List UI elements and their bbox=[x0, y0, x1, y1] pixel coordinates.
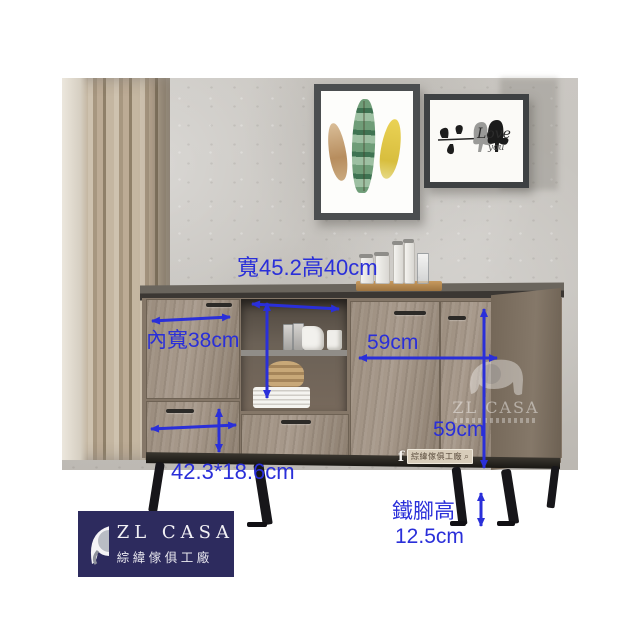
drinking-glass bbox=[283, 324, 293, 351]
glass-bottle bbox=[417, 253, 429, 284]
facebook-search-box: 綜緯傢俱工廠 ⌕ bbox=[407, 449, 473, 464]
cabinet-leg bbox=[546, 466, 559, 509]
watermark-elephant-icon bbox=[461, 352, 531, 398]
facebook-page-name: 綜緯傢俱工廠 bbox=[411, 451, 462, 462]
watermark-brand: ZL CASA bbox=[440, 398, 552, 417]
feather-yellow bbox=[376, 118, 404, 180]
white-pitcher bbox=[302, 326, 324, 351]
tall-bottle bbox=[404, 242, 415, 284]
feather-quill bbox=[363, 101, 365, 191]
dimension-leg-title: 鐵腳高 bbox=[392, 495, 455, 525]
dimension-inner-width-label: 內寬38cm bbox=[146, 324, 239, 354]
dimension-drawer-label: 42.3*18.6cm bbox=[171, 459, 295, 485]
feather-brown bbox=[325, 122, 351, 182]
tall-bottle bbox=[393, 244, 404, 284]
dimension-leg-height-label: 12.5cm bbox=[395, 525, 464, 549]
right-door-1-handle bbox=[394, 311, 426, 315]
love-birds-frame: Love you bbox=[424, 94, 529, 188]
cabinet-foot bbox=[497, 521, 515, 526]
bottle-cap bbox=[403, 239, 414, 243]
plate-stack bbox=[253, 387, 310, 408]
shelf-divider bbox=[241, 350, 347, 356]
facebook-icon: f bbox=[398, 450, 404, 464]
right-door-2-handle bbox=[448, 316, 466, 320]
search-icon: ⌕ bbox=[464, 451, 469, 462]
white-mug bbox=[327, 330, 342, 350]
dimension-door-height-label: 59cm bbox=[433, 418, 484, 442]
cabinet-leg bbox=[501, 469, 519, 525]
dimension-door-width-label: 59cm bbox=[367, 331, 418, 355]
woven-basket bbox=[266, 361, 304, 387]
left-drawer-handle bbox=[166, 409, 194, 413]
facebook-badge: f 綜緯傢俱工廠 ⌕ bbox=[398, 449, 473, 464]
left-door-handle bbox=[206, 303, 232, 307]
cabinet-right-door-1 bbox=[350, 301, 440, 461]
middle-drawer-handle bbox=[281, 420, 311, 424]
dimension-top-label: 寬45.2高40cm bbox=[237, 250, 378, 282]
company-logo: ZL CASA 綜緯傢俱工廠 bbox=[78, 511, 234, 577]
cabinet-foot bbox=[247, 522, 267, 527]
logo-company-text: 綜緯傢俱工廠 bbox=[117, 547, 234, 566]
feather-art-frame bbox=[314, 84, 420, 220]
you-text: you bbox=[488, 143, 504, 153]
curtain-sheer-edge bbox=[62, 78, 88, 460]
bottle-cap bbox=[392, 241, 403, 245]
elephant-logo-icon bbox=[84, 518, 109, 570]
logo-brand-text: ZL CASA bbox=[117, 522, 234, 543]
love-text: Love bbox=[477, 126, 511, 142]
